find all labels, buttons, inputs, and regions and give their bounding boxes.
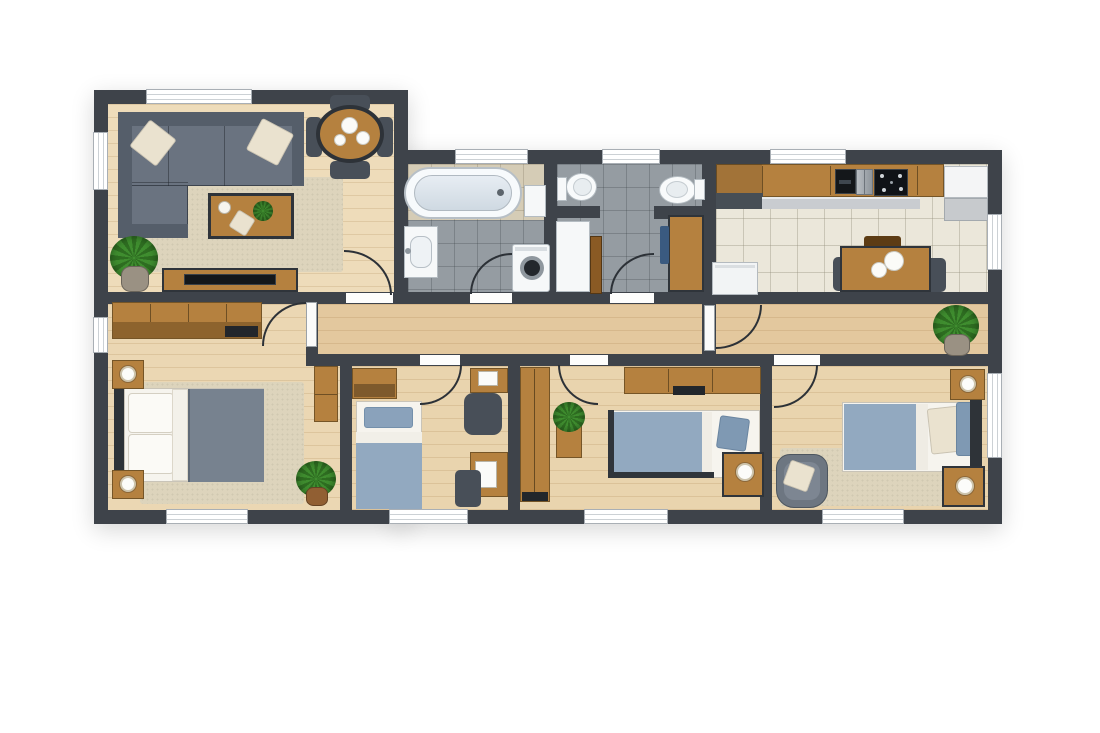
window-toilet-top	[602, 149, 660, 164]
threshold-bedroom4	[774, 355, 820, 365]
cooktop-knob	[890, 181, 893, 184]
television	[184, 274, 276, 285]
door-leaf-hallway	[704, 305, 715, 351]
wall-hall-south	[306, 354, 1002, 366]
toilet-vanity-table	[668, 215, 704, 292]
bedroom3-lamp	[736, 463, 754, 481]
cooktop-burner-2	[898, 174, 902, 178]
cooktop-burner-3	[882, 188, 886, 192]
hand-towel	[660, 226, 669, 264]
bedroom4-bed-duvet	[844, 404, 918, 470]
washbasin-bowl	[410, 236, 432, 268]
bedroom3-plant-leaves	[553, 402, 585, 432]
hallway-floor-west	[318, 304, 702, 354]
floor-plan-canvas	[0, 0, 1100, 733]
hallway-plant-pot	[944, 334, 970, 356]
bidet-tank	[694, 179, 705, 200]
bathtub-drain	[497, 189, 504, 196]
threshold-bedroom2	[420, 355, 460, 365]
threshold-bedroom3	[570, 355, 608, 365]
bedroom3-bed-duvet	[610, 412, 710, 476]
wardrobe-top-seam-1	[668, 369, 669, 392]
threshold-bathroom	[470, 293, 512, 303]
toilet-privacy-stub-left	[556, 206, 600, 218]
bathroom-wall-cabinet	[524, 185, 546, 217]
window-living-top	[146, 89, 252, 104]
counter-gray-edge	[762, 197, 920, 209]
dining-chair-south	[330, 161, 370, 179]
toilet-tall-cabinet	[590, 236, 602, 294]
washing-machine-panel	[515, 247, 547, 251]
bedroom2-desk-chair-1	[464, 393, 502, 435]
dishwasher-panel	[715, 265, 755, 268]
refrigerator-bottom	[944, 198, 988, 221]
coffee-table-plant	[253, 201, 273, 221]
dinner-plate-3	[334, 134, 346, 146]
bedroom3-bed-fold	[702, 412, 712, 476]
threshold-toilet	[610, 293, 654, 303]
wall-right	[988, 150, 1002, 524]
bedroom3-bed-pillow	[716, 415, 750, 452]
toilet-bowl-inner	[573, 178, 592, 196]
bedroom3-bed-frame-bottom	[608, 472, 714, 478]
bedroom4-lamp-bottom	[956, 477, 974, 495]
bedroom2-bed-fold	[356, 432, 422, 443]
master-pillow-top	[128, 393, 174, 433]
counter-dark-section	[716, 193, 763, 209]
window-bedroom4-bottom	[822, 509, 904, 524]
living-plant-pot	[121, 266, 149, 292]
dinner-plate-2	[356, 131, 370, 145]
master-pillow-bottom	[128, 434, 174, 474]
wardrobe-bottom-accent	[522, 492, 548, 501]
window-master-bottom	[166, 509, 248, 524]
wall-master-bedroom2	[340, 366, 352, 510]
bedroom2-laptop	[478, 371, 498, 386]
window-bedroom3-bottom	[584, 509, 668, 524]
master-plant-pot	[306, 487, 328, 506]
bidet-bowl-inner	[666, 181, 688, 198]
master-duvet	[188, 389, 264, 482]
kitchen-plate-2	[871, 262, 887, 278]
door-leaf-master	[306, 302, 317, 347]
bedroom4-lamp-top	[960, 376, 976, 392]
bedroom3-tall-wardrobe	[520, 367, 550, 502]
oven-display	[839, 180, 851, 184]
window-bedroom2-bottom	[389, 509, 468, 524]
bedroom2-bed-duvet	[356, 432, 422, 509]
side-cabinet-seam	[315, 394, 337, 395]
master-sheet-fold	[172, 389, 188, 481]
wardrobe-top-seam-2	[712, 369, 713, 392]
kitchen-sink-divider	[864, 170, 865, 194]
refrigerator-top	[944, 166, 988, 198]
window-bathroom-top	[455, 149, 528, 164]
washbasin-faucet	[405, 248, 411, 254]
cooktop-burner-4	[899, 187, 903, 191]
dresser-seam-1	[150, 304, 151, 322]
window-bedroom4-right	[987, 373, 1002, 458]
bedroom2-desk-chair-2	[455, 470, 481, 507]
bedroom3-bed-frame-left	[608, 410, 614, 478]
window-master-left	[93, 317, 108, 353]
master-lamp-top	[120, 366, 136, 382]
bedroom4-bed-fold	[916, 404, 928, 470]
master-headboard	[114, 389, 124, 481]
toilet-storage-cabinet	[556, 221, 590, 292]
bedroom2-cabinet-front	[354, 384, 395, 397]
washing-machine-door	[524, 260, 540, 276]
sofa-armrest-right	[292, 112, 304, 186]
bedroom2-bed-pillow	[364, 407, 413, 428]
sofa-seam-2	[224, 126, 225, 186]
decor-bowl	[218, 201, 231, 214]
sofa-seam-3	[132, 182, 188, 183]
master-lamp-bottom	[120, 476, 136, 492]
wardrobe-center-seam	[534, 369, 535, 500]
dinner-plate-1	[341, 117, 358, 134]
counter-seam-2	[830, 166, 831, 195]
wardrobe-top-accent	[673, 386, 705, 395]
counter-seam-3	[917, 166, 918, 195]
cooktop-burner-1	[880, 174, 884, 178]
counter-seam-1	[762, 166, 763, 195]
round-dining-table	[316, 105, 384, 163]
bedroom4-headboard	[970, 400, 982, 472]
sofa-backrest-left	[118, 112, 132, 238]
master-media-tray	[225, 326, 258, 337]
wall-bedroom2-bedroom3	[508, 366, 520, 510]
window-kitchen-right	[987, 214, 1002, 270]
dresser-seam-3	[226, 304, 227, 322]
dresser-seam-2	[188, 304, 189, 322]
window-kitchen-top	[770, 149, 846, 164]
window-living-left	[93, 132, 108, 190]
kitchen-plate-1	[884, 251, 904, 271]
